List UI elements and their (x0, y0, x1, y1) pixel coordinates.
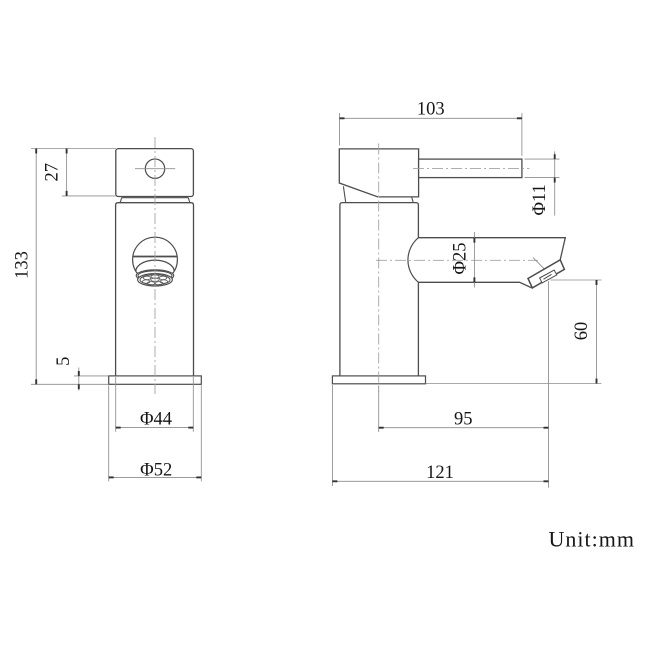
svg-text:Unit:mm: Unit:mm (549, 527, 635, 552)
svg-text:133: 133 (12, 251, 32, 279)
svg-text:Φ44: Φ44 (140, 410, 172, 430)
svg-text:60: 60 (572, 322, 592, 341)
svg-text:Φ11: Φ11 (530, 184, 550, 215)
svg-text:5: 5 (54, 357, 74, 366)
svg-text:Φ52: Φ52 (140, 460, 172, 480)
svg-text:95: 95 (454, 409, 473, 429)
svg-text:121: 121 (426, 463, 454, 483)
svg-text:27: 27 (42, 163, 62, 182)
svg-text:103: 103 (417, 100, 445, 120)
svg-text:Φ25: Φ25 (451, 242, 471, 274)
